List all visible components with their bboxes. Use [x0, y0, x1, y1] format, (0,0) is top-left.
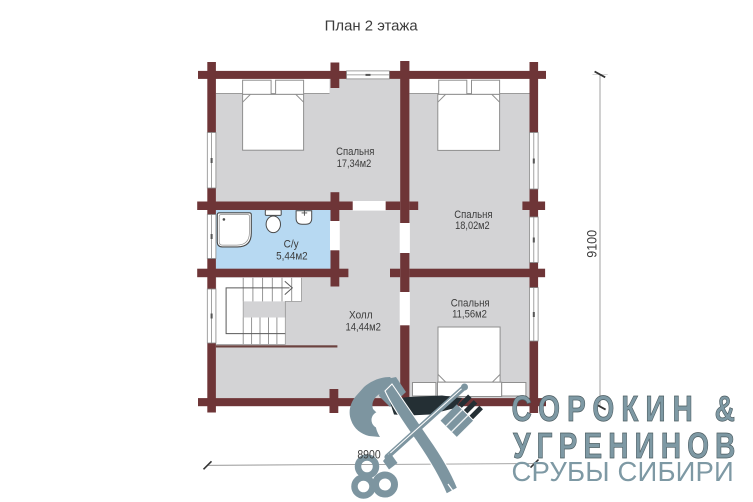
svg-text:8900: 8900 — [357, 448, 380, 462]
svg-text:5,44м2: 5,44м2 — [276, 251, 308, 263]
svg-text:17,34м2: 17,34м2 — [337, 158, 372, 170]
svg-text:14,44м2: 14,44м2 — [345, 322, 381, 334]
svg-text:11,56м2: 11,56м2 — [452, 309, 487, 321]
svg-text:Спальня: Спальня — [336, 146, 374, 158]
svg-text:9100: 9100 — [583, 230, 599, 258]
svg-text:Холл: Холл — [349, 309, 373, 321]
svg-text:СРУБЫ СИБИРИ: СРУБЫ СИБИРИ — [512, 456, 734, 487]
svg-text:СОРОКИН &: СОРОКИН & — [512, 387, 736, 428]
svg-text:С/у: С/у — [284, 239, 299, 251]
svg-text:18,02м2: 18,02м2 — [455, 220, 490, 232]
svg-text:План 2 этажа: План 2 этажа — [325, 19, 419, 35]
